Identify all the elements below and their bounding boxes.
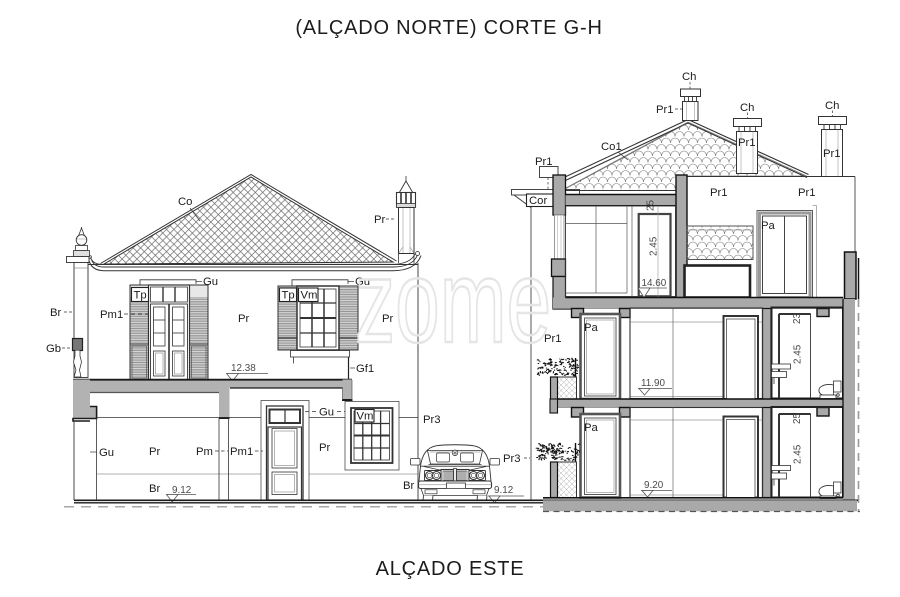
svg-text:Gu: Gu bbox=[99, 447, 114, 459]
svg-text:Pr1: Pr1 bbox=[823, 148, 841, 160]
svg-text:12.38: 12.38 bbox=[231, 363, 256, 374]
svg-text:Pr: Pr bbox=[149, 446, 161, 458]
svg-text:14.60: 14.60 bbox=[642, 278, 667, 289]
svg-text:Pm: Pm bbox=[196, 446, 213, 458]
svg-text:Ch: Ch bbox=[825, 100, 839, 112]
svg-text:Ch: Ch bbox=[682, 71, 696, 83]
svg-text:Pa: Pa bbox=[761, 220, 776, 232]
svg-text:Pr: Pr bbox=[374, 214, 386, 226]
svg-text:Pa: Pa bbox=[584, 322, 599, 334]
svg-text:2.45: 2.45 bbox=[793, 344, 804, 364]
svg-text:Pr1: Pr1 bbox=[798, 187, 816, 199]
svg-text:23: 23 bbox=[792, 313, 803, 324]
svg-text:2.45: 2.45 bbox=[793, 444, 804, 464]
svg-text:Pr1: Pr1 bbox=[656, 104, 674, 116]
svg-text:Pr1: Pr1 bbox=[710, 187, 728, 199]
svg-text:Co: Co bbox=[178, 196, 192, 208]
svg-text:Pr: Pr bbox=[238, 313, 250, 325]
svg-text:Tp: Tp bbox=[282, 290, 295, 302]
svg-text:Pr: Pr bbox=[319, 442, 331, 454]
svg-text:(ALÇADO NORTE) CORTE G-H: (ALÇADO NORTE) CORTE G-H bbox=[295, 17, 602, 39]
svg-text:Pa: Pa bbox=[584, 422, 599, 434]
svg-text:Gu: Gu bbox=[203, 276, 218, 288]
svg-text:2.45: 2.45 bbox=[649, 236, 660, 256]
svg-text:Ch: Ch bbox=[740, 102, 754, 114]
svg-text:9.20: 9.20 bbox=[644, 480, 664, 491]
svg-text:Pm1: Pm1 bbox=[230, 446, 253, 458]
svg-text:Pr3: Pr3 bbox=[503, 453, 521, 465]
svg-text:Br: Br bbox=[50, 307, 62, 319]
svg-text:Pr1: Pr1 bbox=[738, 137, 756, 149]
svg-text:Co1: Co1 bbox=[601, 141, 622, 153]
svg-text:Vm: Vm bbox=[301, 290, 318, 302]
svg-text:Cor: Cor bbox=[529, 195, 547, 207]
svg-text:11.90: 11.90 bbox=[641, 378, 665, 389]
svg-text:zome: zome bbox=[355, 237, 551, 368]
svg-text:Tp: Tp bbox=[134, 290, 147, 302]
svg-text:Gb: Gb bbox=[46, 343, 61, 355]
svg-text:Pm1: Pm1 bbox=[100, 309, 123, 321]
svg-text:Br: Br bbox=[403, 480, 415, 492]
svg-text:Gu: Gu bbox=[319, 407, 334, 419]
svg-text:Pr3: Pr3 bbox=[423, 414, 441, 426]
svg-text:ALÇADO ESTE: ALÇADO ESTE bbox=[376, 558, 525, 580]
svg-text:9.12: 9.12 bbox=[494, 485, 513, 496]
svg-text:Br: Br bbox=[149, 483, 161, 495]
svg-text:25: 25 bbox=[646, 200, 657, 211]
svg-text:25: 25 bbox=[792, 413, 803, 424]
svg-text:Vm: Vm bbox=[357, 411, 374, 423]
